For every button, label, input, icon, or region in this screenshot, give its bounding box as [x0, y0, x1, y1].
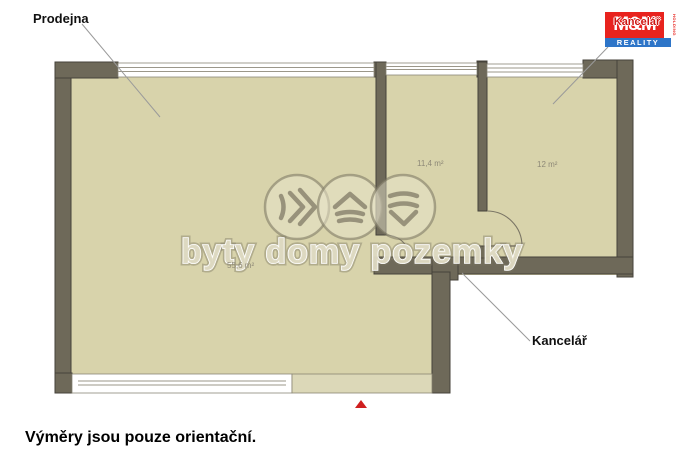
logo-kancelar-text: Kancelář: [605, 16, 669, 28]
wall-bottom-left-block: [55, 373, 72, 393]
wall-right: [617, 60, 633, 277]
house-icon: [339, 220, 361, 222]
room-label-prodejna: Prodejna: [33, 11, 89, 26]
window-top-1: [118, 63, 374, 77]
area-label-middle-room: 11,4 m²: [417, 159, 444, 168]
wall-right-lower: [432, 272, 450, 393]
land-icon: [390, 204, 417, 207]
window-top-3: [487, 64, 583, 77]
entrance-marker-icon: [355, 400, 367, 408]
house-icon: [337, 212, 363, 214]
disclaimer-text: Výměry jsou pouze orientační.: [25, 429, 256, 447]
wall-divider-right: [478, 62, 487, 211]
area-label-right-room: 12 m²: [537, 160, 557, 169]
watermark-emblem: [265, 175, 435, 239]
room-label-kancelar: Kancelář: [532, 333, 587, 348]
logo-holding-text: HOLDING: [672, 14, 677, 36]
wall-top-left-block: [55, 62, 118, 78]
logo-reality-bar: REALITY: [605, 38, 671, 47]
wall-light-bottom-strip: [292, 374, 432, 393]
wall-left: [55, 62, 71, 393]
agency-logo: M&M Kancelář REALITY HOLDING: [605, 12, 671, 47]
floor-plan-page: byty domy pozemky byty domy pozemky Prod…: [0, 0, 686, 457]
land-icon: [390, 194, 417, 197]
leader-kancelar: [462, 273, 530, 341]
floor-plan-drawing: byty domy pozemky byty domy pozemky: [0, 0, 686, 457]
arrows-icon: [281, 196, 284, 218]
window-bottom: [72, 374, 292, 393]
area-label-prodejna: 55,6 m²: [227, 261, 254, 270]
watermark-circle-land: [371, 175, 435, 239]
